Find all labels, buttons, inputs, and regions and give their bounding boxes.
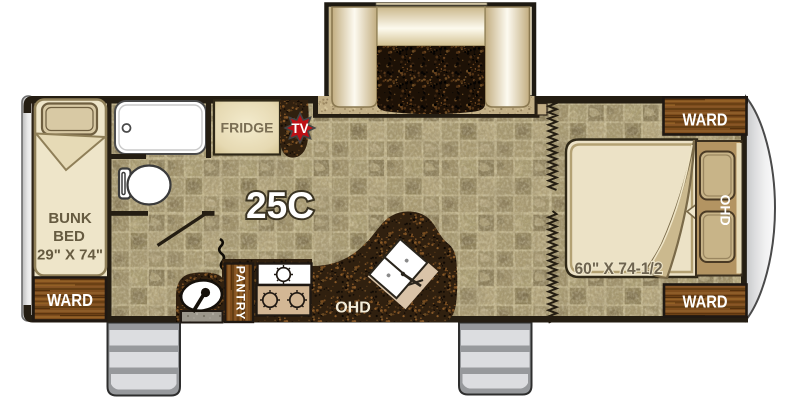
svg-text:BED: BED [53,228,85,245]
svg-text:BUNK: BUNK [48,210,91,227]
svg-text:TV: TV [291,121,308,136]
svg-text:25C: 25C [246,185,314,226]
svg-text:29" X 74": 29" X 74" [37,247,103,264]
svg-text:WARD: WARD [683,110,728,130]
svg-text:WARD: WARD [47,290,93,310]
svg-text:OHD: OHD [335,300,371,317]
svg-text:FRIDGE: FRIDGE [221,120,274,136]
svg-text:OHD: OHD [718,194,734,225]
svg-text:60" X 74-1/2: 60" X 74-1/2 [575,259,663,278]
svg-text:WARD: WARD [683,292,728,312]
svg-text:PANTRY: PANTRY [234,266,248,321]
